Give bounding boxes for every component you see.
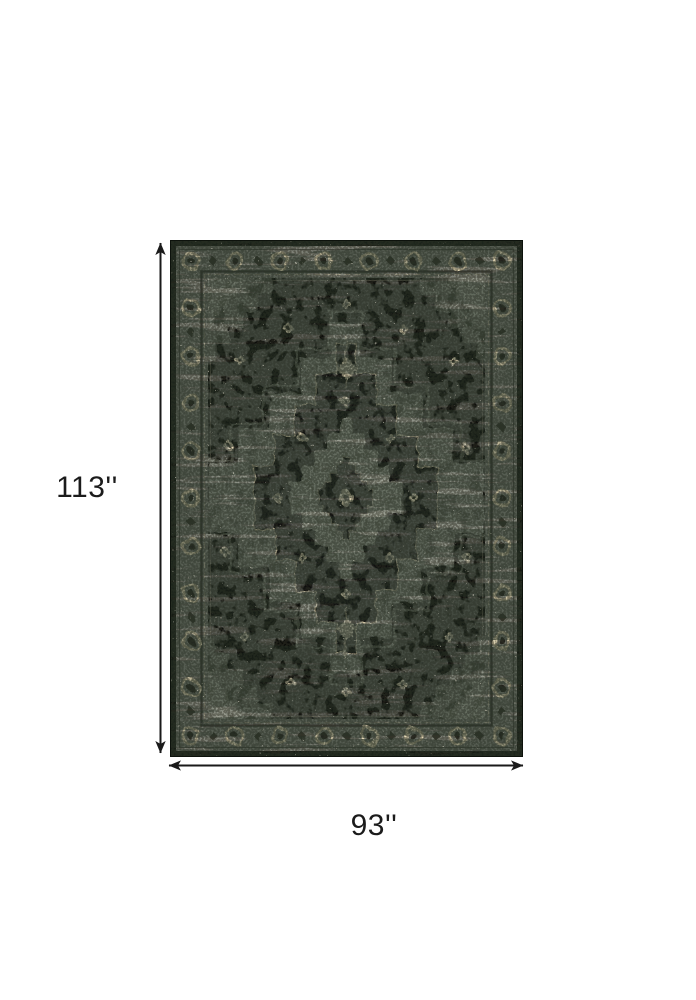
height-dimension-label: 113'' [37, 470, 137, 506]
cream-fleck-texture [170, 240, 523, 757]
width-dimension-label: 93'' [324, 808, 424, 844]
rug-image [170, 240, 523, 757]
rug-image-container [170, 240, 523, 757]
product-dimension-diagram: 113'' 93'' [0, 0, 696, 1000]
rug-graphic [170, 240, 523, 757]
